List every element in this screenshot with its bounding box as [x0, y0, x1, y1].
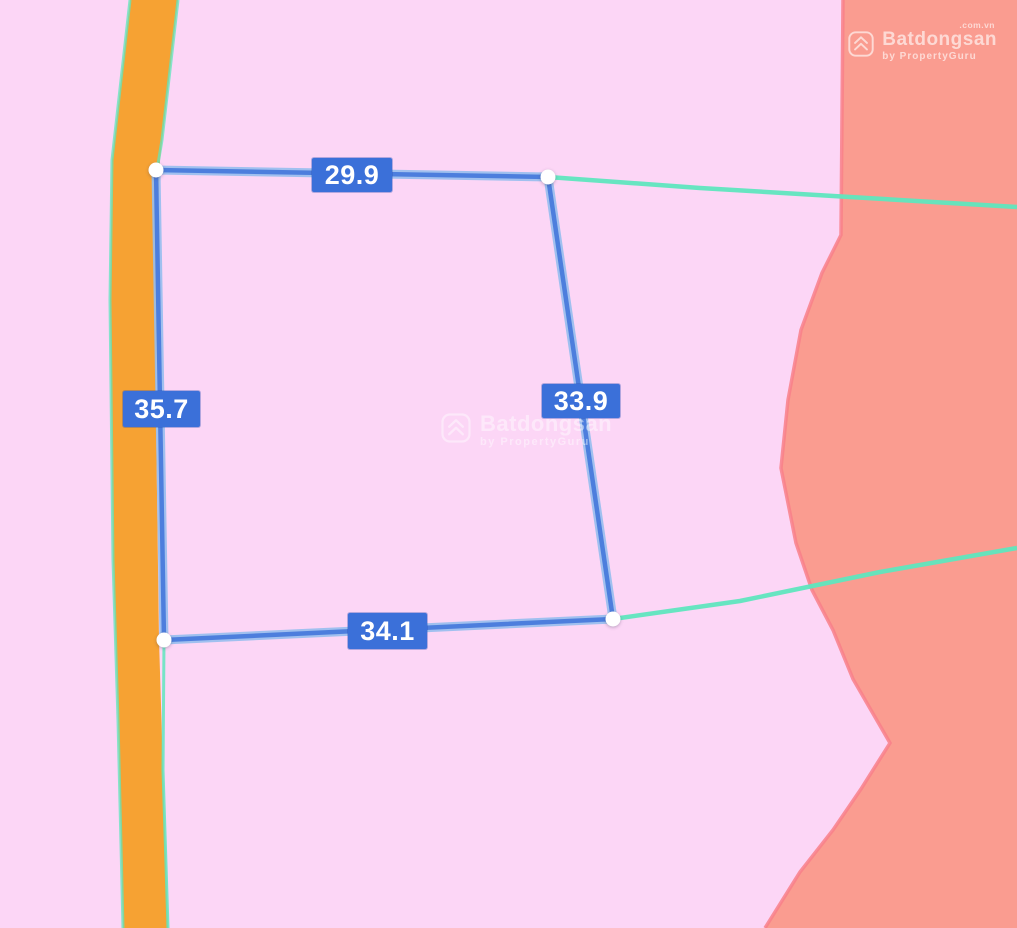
map-canvas[interactable]: 29.9 35.7 33.9 34.1 Batdongsan by Proper… [0, 0, 1017, 928]
vertex-handle-bottom-right[interactable] [606, 612, 621, 627]
measurement-label-top: 29.9 [312, 158, 392, 192]
measurement-label-bottom: 34.1 [348, 613, 427, 649]
region-salmon [765, 0, 1017, 928]
vertex-handle-bottom-left[interactable] [157, 633, 172, 648]
measurement-label-right: 33.9 [542, 384, 620, 418]
vertex-handle-top-right[interactable] [541, 170, 556, 185]
vertex-handle-top-left[interactable] [149, 163, 164, 178]
measurement-label-left: 35.7 [123, 391, 200, 427]
map-shapes-layer [0, 0, 1017, 928]
